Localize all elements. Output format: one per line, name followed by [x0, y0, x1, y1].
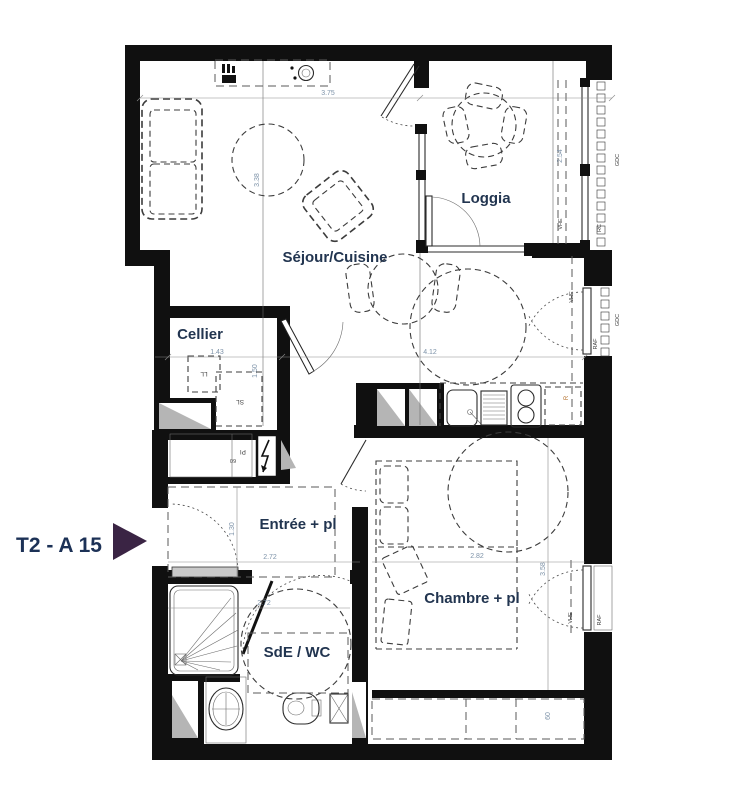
bedroom-chair	[381, 545, 429, 596]
bedside-table	[381, 599, 412, 646]
entry-closet: Pl 60	[170, 434, 252, 477]
chambre-shutter-label: VHE	[568, 612, 574, 624]
washer-label: LL	[200, 370, 208, 377]
room-label-chambre: Chambre + pl	[424, 590, 519, 607]
dim-kitchen-width: 4.12	[423, 349, 437, 356]
dim-chambre-depth: 3.58	[540, 562, 547, 576]
dim-cellier-width: 1.43	[210, 349, 224, 356]
dim-entree-width: 2.72	[263, 554, 277, 561]
radiator-icon	[222, 64, 236, 83]
floor-plan-drawing: R LL SL Pl 60	[0, 0, 755, 800]
kitchen-shutter-label: VHE	[569, 291, 575, 303]
closet-depth-label: 60	[230, 457, 236, 463]
loggia-shutter-label: VHE	[558, 218, 564, 230]
washbasin	[206, 677, 246, 743]
bay-door-open-leaf	[381, 64, 419, 126]
sofa	[142, 99, 202, 219]
closet-label: Pl	[240, 448, 246, 455]
room-label-sejour: Séjour/Cuisine	[282, 249, 387, 266]
loggia-table	[441, 81, 527, 169]
dim-wardrobe-depth: 60	[545, 712, 552, 720]
fridge-label: R	[564, 395, 570, 400]
dishwasher-grill	[481, 391, 507, 425]
vmc-icon	[290, 66, 313, 81]
loggia-railing-label: GDC	[615, 154, 621, 166]
fridge	[545, 387, 581, 425]
loggia-rc-label: RC	[597, 224, 603, 232]
kitchen-railing-label: GDC	[615, 314, 621, 326]
cellier-door	[281, 319, 343, 374]
dryer-label: SL	[236, 398, 244, 405]
kitchen-sink	[447, 390, 477, 426]
floor-plan-page: R LL SL Pl 60	[0, 0, 755, 800]
partition-lines	[263, 61, 553, 426]
cooktop	[511, 385, 541, 427]
dim-sejour-width: 3.75	[321, 90, 335, 97]
room-label-entree: Entrée + pl	[259, 516, 336, 533]
room-label-loggia: Loggia	[461, 190, 511, 207]
dim-chambre-width: 2.82	[470, 553, 484, 560]
front-door	[170, 504, 238, 577]
dim-cellier-depth: 1.50	[252, 364, 259, 378]
shower	[170, 586, 238, 675]
dim-sde-width: 2.72	[257, 600, 271, 607]
armchair	[299, 167, 378, 246]
coffee-table	[232, 124, 304, 196]
room-label-sde: SdE / WC	[264, 644, 331, 661]
room-label-cellier: Cellier	[177, 326, 223, 343]
kitchen-counter: R	[440, 383, 583, 427]
unit-tag: T2 - A 15	[16, 523, 147, 560]
unit-label: T2 - A 15	[16, 534, 102, 557]
dim-loggia-depth: 2.54	[557, 149, 564, 163]
turning-circle-sejour	[410, 269, 526, 385]
dim-entree-depth: 1.30	[229, 522, 236, 536]
electrical-panel	[257, 435, 277, 477]
ceiling-symbols	[215, 60, 330, 86]
bathroom-door	[243, 575, 350, 654]
turning-circle-bedroom	[448, 432, 568, 552]
toilet	[283, 693, 321, 724]
vent-duct	[330, 694, 348, 723]
bed	[376, 461, 517, 649]
dim-sejour-depth: 3.38	[254, 173, 261, 187]
chambre-raf-label: RAF	[597, 614, 603, 626]
bedroom-door	[341, 440, 366, 491]
entrance-arrow-icon	[113, 523, 147, 560]
kitchen-raf-label: RAF	[593, 338, 599, 350]
bedroom-wardrobe	[372, 699, 584, 739]
